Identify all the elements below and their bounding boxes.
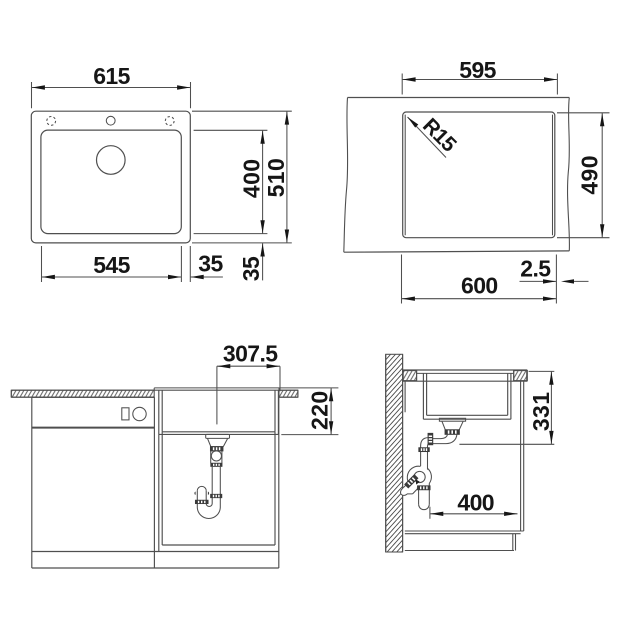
svg-text:R15: R15 [418,114,461,157]
svg-text:400: 400 [457,490,494,516]
svg-text:220: 220 [307,390,333,430]
svg-text:510: 510 [263,158,289,198]
svg-text:307.5: 307.5 [223,340,278,366]
svg-text:35: 35 [238,256,264,281]
svg-text:35: 35 [198,251,223,277]
svg-text:2.5: 2.5 [520,255,551,281]
svg-text:595: 595 [459,57,496,83]
svg-text:400: 400 [239,159,265,199]
svg-text:331: 331 [528,392,554,432]
svg-text:615: 615 [93,63,130,89]
svg-text:545: 545 [93,252,130,278]
svg-text:600: 600 [461,273,498,299]
svg-text:490: 490 [576,155,602,195]
